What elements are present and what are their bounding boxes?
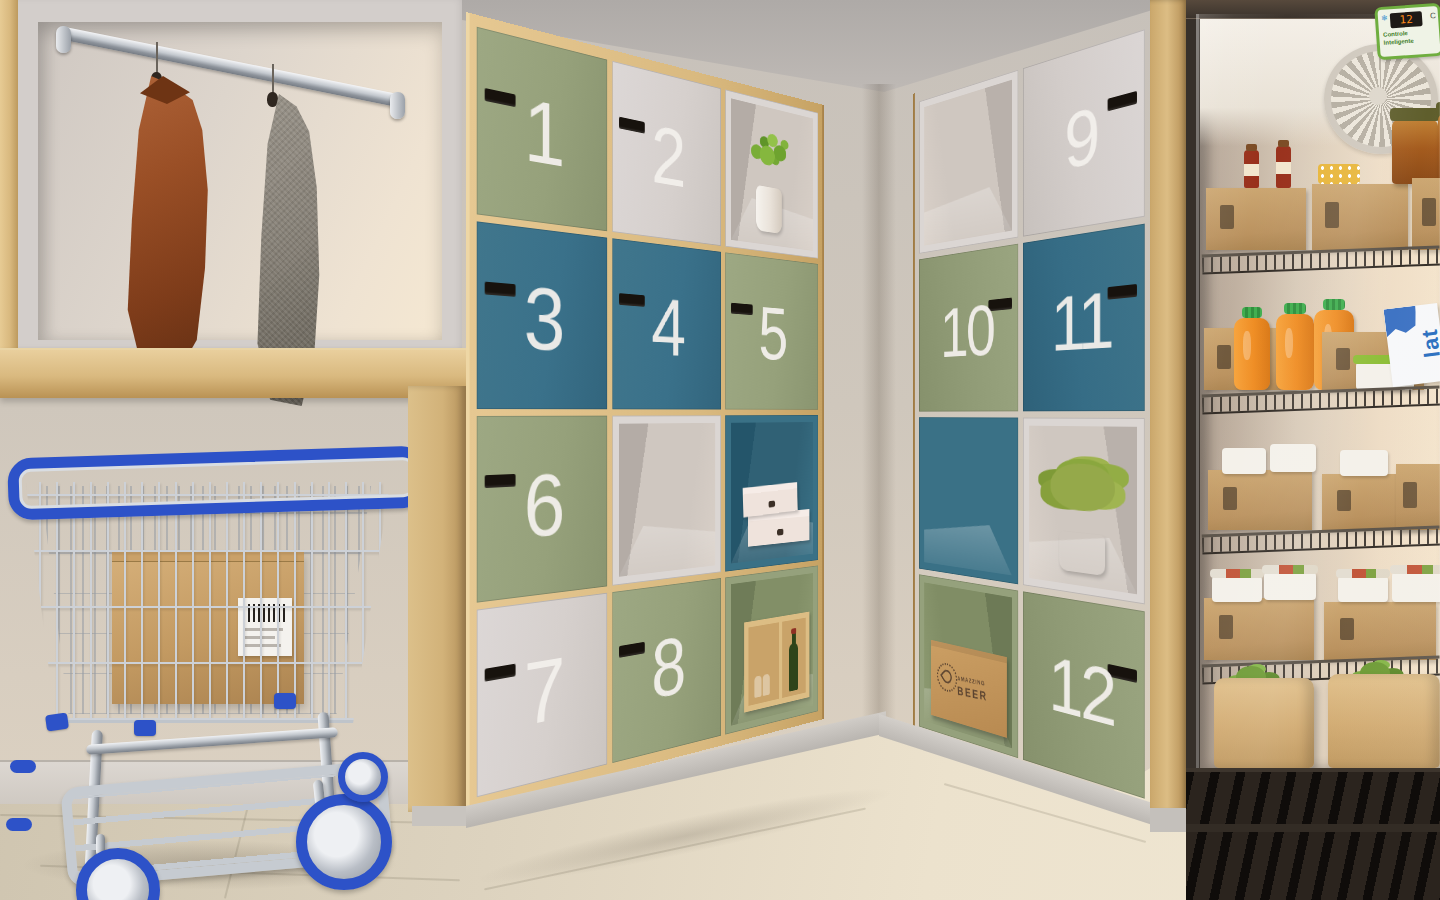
wall-closet [0,0,462,400]
door-handle-icon [485,282,516,297]
fridge-interior: lat [1200,18,1440,768]
food-tub [1264,572,1316,600]
cubby-floor [924,182,1012,245]
closet-wood-shelf [0,348,466,398]
cubby-interior: AMAZZING BEER [924,583,1012,749]
locker-door-11: 11 [1023,223,1145,410]
wire-cart [0,430,430,900]
door-handle-icon [485,474,516,488]
cubby-floor [924,518,1012,575]
locker-cubby-winecrate [725,566,818,735]
kraft-crate [1204,598,1314,660]
sticker-text: Inteligente [1384,38,1414,47]
kraft-crate [1312,184,1408,250]
cart-crossbar [86,727,338,755]
locker-wall-left: 1 2 3 4 5 6 [466,12,824,812]
kraft-crate [1208,470,1312,530]
door-handle-icon [619,642,645,658]
printed-tub-lid [1210,569,1264,578]
kraft-crate [1206,188,1306,250]
locker-cubby-empty [919,417,1018,585]
door-handle-icon [1108,284,1138,300]
white-lid-tub [1222,448,1266,474]
salad-pack [1396,464,1440,530]
striped-plant-pot [1059,531,1105,576]
locker-number: 8 [651,624,686,710]
locker-wood-side-panel [408,386,466,812]
food-tub [1392,572,1440,602]
cubby-floor [619,520,716,577]
locker-number: 2 [651,113,686,199]
cart-tube-cap [6,818,32,831]
fridge-wood-trim [1150,0,1188,812]
locker-number: 10 [940,293,993,368]
milk-carton-label: lat [1417,327,1440,359]
room-scene: 1 2 3 4 5 6 [0,0,1440,900]
glass-door-fridge: lat [1186,0,1440,900]
locker-plinth [1150,808,1190,832]
temperature-unit: C [1430,11,1436,20]
locker-cubby-plant [725,89,818,258]
temperature-readout: 12 [1390,11,1423,28]
door-handle-icon [731,303,753,315]
cubby-interior [731,98,813,250]
door-handle-icon [485,663,516,681]
milk-carton: lat [1383,303,1440,387]
drinking-glass [755,675,762,698]
polka-dot-jar-lid [1318,164,1360,184]
locker-door-6: 6 [477,415,607,603]
kraft-crate [1324,602,1436,660]
locker-door-4: 4 [612,238,721,409]
door-handle-icon [1108,91,1138,111]
preserve-jar [1392,120,1438,184]
locker-number: 11 [1051,279,1111,363]
sauce-bottle [1276,146,1291,188]
food-tub [1212,576,1262,602]
wine-bottle [789,642,798,691]
door-handle-icon [619,293,645,307]
locker-cubby-bush [1023,417,1145,604]
locker-number: 9 [1064,94,1097,181]
cubby-interior [924,80,1012,246]
locker-number: 3 [524,274,565,364]
locker-door-7: 7 [477,593,607,797]
locker-door-3: 3 [477,221,607,409]
locker-cubby-beerbox: AMAZZING BEER [919,575,1018,759]
orange-juice-bottle [1234,318,1270,390]
printed-tub-lid [1390,565,1440,574]
cart-blue-clip [45,713,69,732]
locker-door-5: 5 [725,252,818,409]
locker-door-8: 8 [612,578,721,763]
locker-cubby-empty [612,415,721,586]
crate-divider [779,622,782,699]
cart-blue-rim [7,445,427,520]
cart-tube-cap [10,760,36,773]
locker-cubby-shoeboxes [725,415,818,572]
kraft-crate [1412,178,1440,250]
paper-grocery-bag [1328,674,1440,768]
door-handle-icon [619,117,645,134]
locker-wall-right: 9 10 11 [913,14,1155,814]
wood-wine-crate [744,612,809,713]
drinking-glass [763,674,770,696]
locker-number: 1 [524,85,565,180]
cart-blue-clip [274,693,296,709]
locker-number: 12 [1049,644,1114,739]
food-tub [1338,576,1388,602]
cubby-interior [731,422,813,564]
printed-tub-lid [1262,565,1318,574]
rail-bracket-right [390,92,405,119]
cart-wheel [296,794,392,890]
white-lid-tub [1340,450,1388,476]
corner-shadow [862,84,896,734]
cubby-interior [1029,425,1137,594]
milk-carton-graphic [1383,306,1420,346]
locker-number: 4 [651,285,686,367]
plant-leaves [760,144,775,166]
cubby-interior [619,422,716,577]
locker-door-2: 2 [612,61,721,246]
fridge-vent-grille [1186,768,1440,900]
closet-wood-side [0,0,18,398]
snowflake-icon: ❄ [1381,13,1388,22]
locker-number: 6 [524,461,565,551]
paper-grocery-bag [1214,678,1314,768]
locker-cubby-empty [919,70,1018,254]
locker-plinth [412,806,466,826]
locker-door-10: 10 [919,243,1018,411]
cubby-interior [731,573,813,725]
sauce-bottle [1244,150,1259,188]
cart-wheel-rear [338,752,388,802]
locker-number: 5 [759,296,788,371]
door-handle-icon [485,88,516,107]
bush-plant [1050,462,1114,513]
white-plant-pot [756,185,781,234]
hanger-top [267,92,278,107]
locker-number: 7 [524,644,565,739]
cart-blue-clip [134,720,156,736]
printed-tub-lid [1336,569,1390,578]
rail-bracket-left [56,26,71,53]
beer-box-text: BEER [957,684,988,704]
temperature-display-sticker: ❄ 12 C Controle Inteligente [1374,3,1440,60]
locker-door-9: 9 [1023,29,1145,236]
cubby-interior [924,424,1012,575]
orange-juice-bottle [1276,314,1314,390]
locker-door-1: 1 [477,27,607,231]
white-lid-tub [1270,444,1316,472]
